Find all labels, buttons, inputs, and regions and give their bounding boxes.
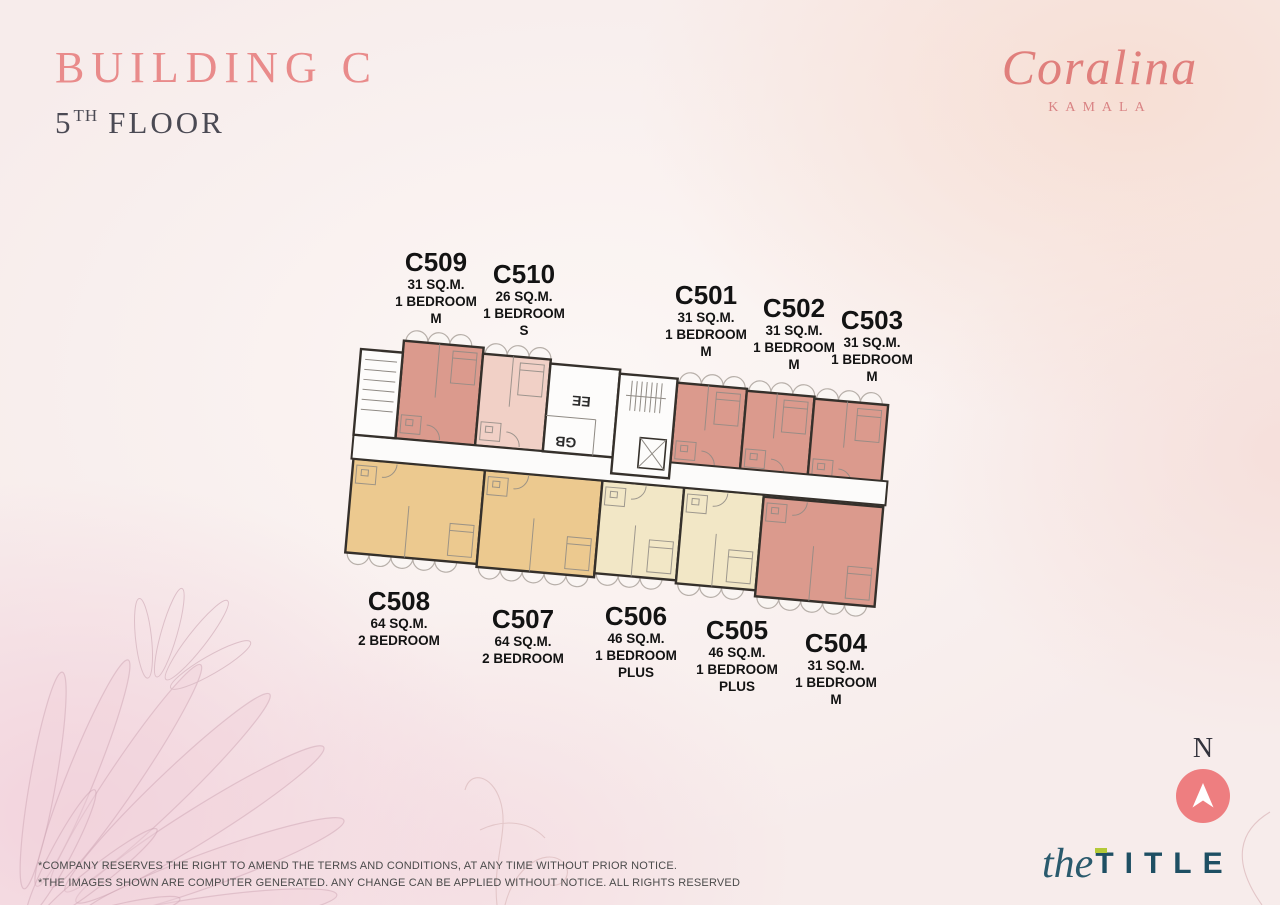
north-arrow-icon	[1176, 769, 1230, 823]
unit-type: M	[831, 368, 913, 385]
unit-type: M	[395, 310, 477, 327]
unit-id: C510	[483, 260, 565, 288]
unit-label-C506: C50646 SQ.M.1 BEDROOMPLUS	[595, 602, 677, 681]
balcony-C509	[406, 330, 473, 347]
balcony-C501	[679, 372, 746, 389]
unit-type: 1 BEDROOM	[665, 326, 747, 343]
unit-id: C507	[482, 605, 564, 633]
unit-id: C501	[665, 281, 747, 309]
unit-shape-C505	[676, 488, 764, 591]
unit-shape-C504	[755, 497, 883, 607]
unit-shape-C501	[670, 383, 747, 471]
unit-interior-C509	[400, 341, 478, 443]
floor-number: 5	[55, 105, 74, 140]
developer-logo-caps: TITLE	[1095, 847, 1233, 881]
unit-label-C501: C50131 SQ.M.1 BEDROOMM	[665, 281, 747, 360]
balcony-C507	[478, 567, 589, 588]
unit-type: 1 BEDROOM	[795, 674, 877, 691]
core-label-stair: EE	[571, 393, 591, 411]
balcony-C508	[346, 553, 457, 574]
unit-interior-C506	[598, 483, 678, 580]
developer-logo-script: the	[1042, 841, 1093, 887]
balcony-C506	[595, 573, 662, 590]
unit-area: 31 SQ.M.	[753, 322, 835, 339]
unit-area: 31 SQ.M.	[665, 309, 747, 326]
unit-label-C509: C50931 SQ.M.1 BEDROOMM	[395, 248, 477, 327]
unit-label-C510: C51026 SQ.M.1 BEDROOMS	[483, 260, 565, 339]
balcony-C505	[677, 583, 744, 600]
unit-shape-C507	[476, 470, 602, 577]
page-header: BUILDING C 5THFLOOR	[55, 42, 378, 141]
unit-type: 2 BEDROOM	[482, 650, 564, 667]
unit-type: S	[483, 322, 565, 339]
stair-left-detail	[361, 359, 397, 412]
central-core	[611, 374, 677, 479]
unit-id: C504	[795, 629, 877, 657]
central-core-detail	[620, 380, 671, 470]
unit-id: C508	[358, 587, 440, 615]
ee-gb-rooms-detail	[543, 415, 596, 455]
unit-area: 64 SQ.M.	[482, 633, 564, 650]
unit-id: C505	[696, 616, 778, 644]
stair-left	[354, 349, 403, 438]
unit-interior-C503	[811, 399, 882, 486]
unit-shape-C509	[395, 341, 483, 446]
unit-id: C506	[595, 602, 677, 630]
floor-ordinal-suffix: TH	[74, 106, 99, 125]
ee-gb-rooms	[543, 364, 620, 458]
floor-plan-page: EEGB C50931 SQ.M.1 BEDROOMMC51026 SQ.M.1…	[0, 0, 1280, 905]
unit-shape-C502	[740, 391, 815, 479]
compass-n-label: N	[1164, 733, 1242, 765]
floor-word: FLOOR	[108, 105, 225, 140]
unit-label-C505: C50546 SQ.M.1 BEDROOMPLUS	[696, 616, 778, 695]
unit-label-C508: C50864 SQ.M.2 BEDROOM	[358, 587, 440, 649]
unit-type: 1 BEDROOM	[753, 339, 835, 356]
balcony-C510	[485, 343, 552, 360]
north-arrow-glyph	[1186, 779, 1220, 813]
unit-type: 1 BEDROOM	[595, 647, 677, 664]
floor-title: 5THFLOOR	[55, 105, 378, 141]
unit-area: 31 SQ.M.	[795, 657, 877, 674]
unit-interior-C502	[744, 391, 809, 476]
corridor	[351, 435, 887, 506]
unit-shape-C503	[807, 399, 888, 489]
unit-id: C509	[395, 248, 477, 276]
unit-area: 26 SQ.M.	[483, 288, 565, 305]
unit-type: 1 BEDROOM	[483, 305, 565, 322]
unit-label-C502: C50231 SQ.M.1 BEDROOMM	[753, 294, 835, 373]
core-label-lobby: GB	[555, 433, 577, 451]
building-title: BUILDING C	[55, 42, 378, 93]
unit-label-C503: C50331 SQ.M.1 BEDROOMM	[831, 306, 913, 385]
unit-type: 2 BEDROOM	[358, 632, 440, 649]
disclaimer-line-1: *COMPANY RESERVES THE RIGHT TO AMEND THE…	[38, 858, 740, 875]
unit-interior-C505	[680, 490, 758, 590]
developer-logo: theTITLE	[1042, 840, 1234, 888]
brand-logo: Coralina KAMALA	[985, 38, 1215, 116]
unit-id: C502	[753, 294, 835, 322]
unit-type: PLUS	[595, 664, 677, 681]
balcony-C504	[756, 596, 867, 617]
unit-type: M	[795, 691, 877, 708]
brand-name: Coralina	[985, 38, 1215, 96]
unit-area: 31 SQ.M.	[395, 276, 477, 293]
balcony-C502	[749, 380, 816, 397]
unit-interior-C510	[479, 354, 545, 449]
unit-shape-C510	[475, 354, 551, 452]
unit-shape-C506	[594, 481, 684, 581]
brand-location: KAMALA	[985, 100, 1215, 116]
unit-label-C507: C50764 SQ.M.2 BEDROOM	[482, 605, 564, 667]
unit-type: M	[665, 343, 747, 360]
unit-interior-C508	[349, 461, 479, 563]
unit-area: 46 SQ.M.	[595, 630, 677, 647]
unit-area: 31 SQ.M.	[831, 334, 913, 351]
unit-interior-C501	[674, 383, 741, 468]
balcony-C503	[816, 388, 883, 405]
unit-area: 64 SQ.M.	[358, 615, 440, 632]
unit-id: C503	[831, 306, 913, 334]
unit-shape-C508	[345, 459, 485, 564]
unit-type: 1 BEDROOM	[696, 661, 778, 678]
unit-interior-C507	[480, 473, 596, 577]
unit-type: PLUS	[696, 678, 778, 695]
unit-type: 1 BEDROOM	[395, 293, 477, 310]
unit-type: M	[753, 356, 835, 373]
unit-label-C504: C50431 SQ.M.1 BEDROOMM	[795, 629, 877, 708]
unit-interior-C504	[759, 499, 877, 606]
disclaimer-line-2: *THE IMAGES SHOWN ARE COMPUTER GENERATED…	[38, 875, 740, 892]
unit-type: 1 BEDROOM	[831, 351, 913, 368]
disclaimer: *COMPANY RESERVES THE RIGHT TO AMEND THE…	[38, 858, 740, 892]
unit-area: 46 SQ.M.	[696, 644, 778, 661]
compass: N	[1164, 733, 1242, 823]
